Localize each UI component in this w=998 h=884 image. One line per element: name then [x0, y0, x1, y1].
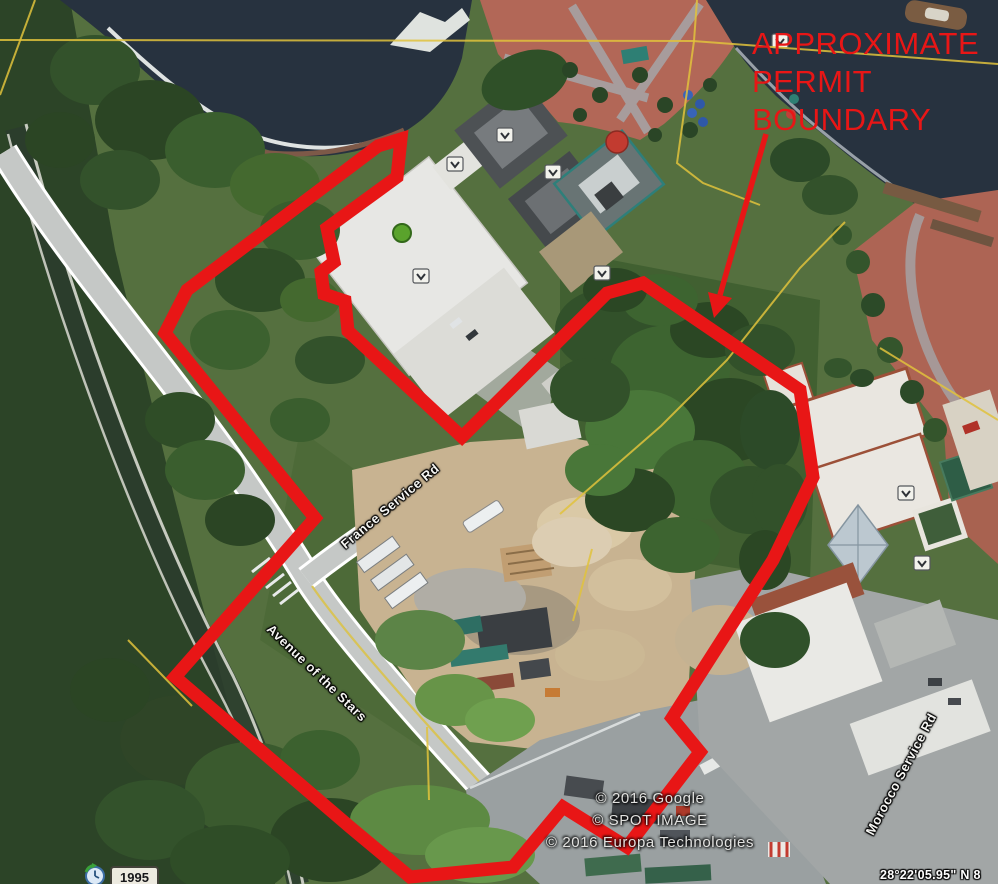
placemark-icon[interactable]: [914, 556, 930, 570]
attribution-line: © 2016 Europa Technologies: [520, 832, 780, 854]
permit-label-line: PERMIT: [752, 63, 979, 101]
google-earth-viewport: France Service Rd Avenue of the Stars Mo…: [0, 0, 998, 884]
placemark-icon[interactable]: [594, 266, 610, 280]
placemark-icon[interactable]: [447, 157, 463, 171]
attribution: © 2016 Google © SPOT IMAGE © 2016 Europa…: [520, 788, 780, 854]
placemark-icon[interactable]: [497, 128, 513, 142]
placemark-icon[interactable]: [545, 165, 561, 179]
historical-imagery-clock-icon[interactable]: [82, 862, 108, 884]
coordinates-display: 28°22'05.95" N 8: [880, 868, 981, 882]
imagery-year-badge[interactable]: 1995: [110, 866, 159, 884]
permit-label-line: BOUNDARY: [752, 101, 979, 139]
permit-label-line: APPROXIMATE: [752, 25, 979, 63]
attribution-line: © 2016 Google: [520, 788, 780, 810]
permit-boundary-label: APPROXIMATE PERMIT BOUNDARY: [752, 25, 979, 139]
imagery-year-value: 1995: [120, 870, 149, 884]
placemark-icon[interactable]: [413, 269, 429, 283]
attribution-line: © SPOT IMAGE: [520, 810, 780, 832]
placemark-icon[interactable]: [898, 486, 914, 500]
